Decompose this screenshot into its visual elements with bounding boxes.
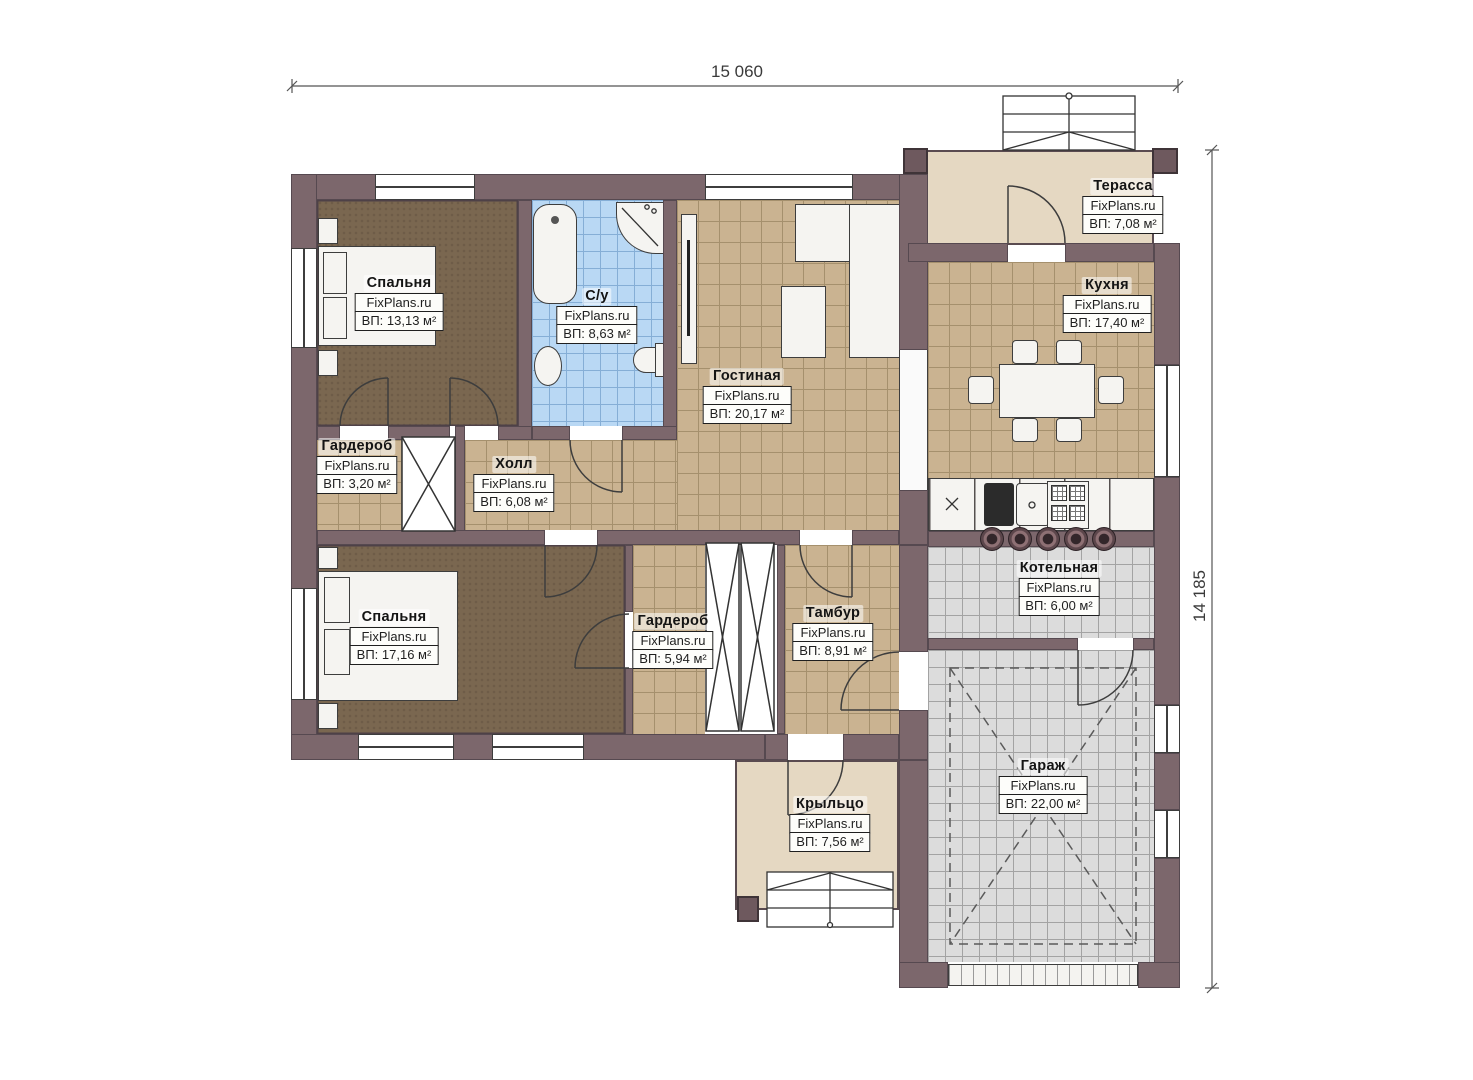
room-label-bedroom-1: Спальня FixPlans.ru ВП: 13,13 м² [355,275,444,331]
wall-vestibule-boiler-lower [899,710,928,760]
equipment-knob [1008,527,1032,551]
sofa-side [849,204,905,358]
room-info: FixPlans.ru ВП: 17,40 м² [1063,296,1152,333]
room-info: FixPlans.ru ВП: 20,17 м² [703,387,792,424]
room-label-wardrobe-2: Гардероб FixPlans.ru ВП: 5,94 м² [632,613,713,669]
room-label-wardrobe-1: Гардероб FixPlans.ru ВП: 3,20 м² [316,438,397,494]
room-info: FixPlans.ru ВП: 22,00 м² [999,777,1088,814]
room-area: ВП: 3,20 м² [316,474,397,494]
bathtub-drain [551,216,559,224]
equipment-knob [980,527,1004,551]
wall-bedroom2-wardrobe2-upper [625,545,633,612]
window-bottom-2 [492,734,584,760]
room-info: FixPlans.ru ВП: 3,20 м² [316,457,397,494]
room-info: FixPlans.ru ВП: 17,16 м² [350,628,439,665]
room-label-terrace: Терасса FixPlans.ru ВП: 7,08 м² [1082,178,1163,234]
room-label-boiler-room: Котельная FixPlans.ru ВП: 6,00 м² [1017,560,1102,616]
wall-garage-bottom-left [899,962,948,988]
room-area: ВП: 22,00 м² [999,794,1088,814]
wall-garage-left [899,760,928,988]
watermark: FixPlans.ru [1063,295,1152,315]
garage-door [948,964,1138,986]
terrace-stairs [1003,93,1135,150]
room-label-garage: Гараж FixPlans.ru ВП: 22,00 м² [999,758,1088,814]
room-name: Крыльцо [793,796,867,813]
pillow [324,577,350,623]
pillow [323,252,347,294]
room-info: FixPlans.ru ВП: 6,00 м² [1018,579,1099,616]
chair [968,376,994,404]
room-area: ВП: 5,94 м² [632,649,713,669]
nightstand [318,350,338,376]
chair [1012,418,1038,442]
room-label-living-room: Гостиная FixPlans.ru ВП: 20,17 м² [703,368,792,424]
wall-terrace-kitchen-right [1065,243,1154,262]
room-label-hall: Холл FixPlans.ru ВП: 6,08 м² [473,456,554,512]
wall-bedroom1-bottom-c [498,426,532,440]
room-area: ВП: 6,00 м² [1018,596,1099,616]
wall-bathroom-living [663,200,677,440]
room-area: ВП: 13,13 м² [355,311,444,331]
pillow [323,297,347,339]
stove-burner [1051,505,1067,521]
room-area: ВП: 17,40 м² [1063,313,1152,333]
tv [687,240,690,336]
nightstand [318,703,338,729]
equipment-knob [1064,527,1088,551]
room-label-bedroom-2: Спальня FixPlans.ru ВП: 17,16 м² [350,609,439,665]
wall-bathroom-bottom-a [532,426,570,440]
wall-mid-b [597,530,800,545]
room-name: Гардероб [635,613,712,630]
watermark: FixPlans.ru [350,627,439,647]
watermark: FixPlans.ru [789,814,870,834]
coffee-table [781,286,826,358]
room-name: Терасса [1090,178,1156,195]
wall-boiler-garage-left [928,638,1078,650]
room-name: Спальня [359,609,430,626]
room-name: Гостиная [710,368,784,385]
room-info: FixPlans.ru ВП: 6,08 м² [473,475,554,512]
equipment-knob [1092,527,1116,551]
wall-bedroom1-bathroom [518,200,532,440]
wall-bottom-stub-right [843,734,899,760]
opening-living-kitchen [899,350,928,490]
chair [1098,376,1124,404]
wall-wardrobe2-vestibule [777,545,785,734]
wall-wardrobe1-hall [455,426,465,545]
room-area: ВП: 6,08 м² [473,492,554,512]
dimension-width-label: 15 060 [711,62,763,82]
dimension-height-label: 14 185 [1190,570,1210,622]
wall-mid-a [317,530,545,545]
wall-bathroom-bottom-b [622,426,677,440]
watermark: FixPlans.ru [473,474,554,494]
watermark: FixPlans.ru [999,776,1088,796]
watermark: FixPlans.ru [1018,578,1099,598]
room-info: FixPlans.ru ВП: 7,08 м² [1082,197,1163,234]
watermark: FixPlans.ru [632,631,713,651]
wall-right-2 [1154,477,1180,705]
room-area: ВП: 8,91 м² [792,641,873,661]
stove-burner [1069,505,1085,521]
wall-bottom-stub-left [765,734,788,760]
room-name: С/у [582,288,611,305]
window-garage-right-2 [1154,810,1180,858]
stove-burner [1069,485,1085,501]
room-area: ВП: 8,63 м² [556,324,637,344]
room-area: ВП: 7,56 м² [789,832,870,852]
wall-living-kitchen-lower [899,490,928,545]
kitchen-sink [1016,483,1050,526]
room-info: FixPlans.ru ВП: 13,13 м² [355,294,444,331]
wall-boiler-garage-right [1133,638,1154,650]
wall-vestibule-boiler-upper [899,545,928,652]
room-info: FixPlans.ru ВП: 5,94 м² [632,632,713,669]
room-label-porch: Крыльцо FixPlans.ru ВП: 7,56 м² [789,796,870,852]
pillow [324,629,350,675]
chair [1056,340,1082,364]
watermark: FixPlans.ru [1082,196,1163,216]
watermark: FixPlans.ru [355,293,444,313]
window-bedroom1-left [291,248,317,348]
window-kitchen-right [1154,365,1180,477]
terrace-column-left [903,148,928,174]
stove-burner [1051,485,1067,501]
watermark: FixPlans.ru [792,623,873,643]
wall-garage-bottom-right [1138,962,1180,988]
floor-plan-canvas: 15 060 14 185 [0,0,1473,1080]
watermark: FixPlans.ru [703,386,792,406]
chair [1056,418,1082,442]
nightstand [318,218,338,244]
chair [1012,340,1038,364]
watermark: FixPlans.ru [556,306,637,326]
kitchen-sink-drainer [984,483,1014,526]
dimension-height-line [1205,145,1219,993]
window-bottom-1 [358,734,454,760]
room-name: Спальня [364,275,435,292]
room-info: FixPlans.ru ВП: 7,56 м² [789,815,870,852]
room-name: Тамбур [803,605,863,622]
room-name: Котельная [1017,560,1102,577]
room-info: FixPlans.ru ВП: 8,91 м² [792,624,873,661]
window-living-top [705,174,853,200]
wall-living-kitchen-upper [899,174,928,350]
wall-right-3 [1154,753,1180,810]
room-label-bathroom: С/у FixPlans.ru ВП: 8,63 м² [556,288,637,344]
room-name: Гардероб [319,438,396,455]
room-name: Кухня [1082,277,1132,294]
dining-table [999,364,1095,418]
porch-column [737,896,759,922]
nightstand [318,547,338,569]
wall-right-1 [1154,243,1180,365]
watermark: FixPlans.ru [316,456,397,476]
room-label-kitchen: Кухня FixPlans.ru ВП: 17,40 м² [1063,277,1152,333]
wall-mid-c [852,530,899,545]
room-info: FixPlans.ru ВП: 8,63 м² [556,307,637,344]
wall-terrace-kitchen-left [908,243,1008,262]
terrace-column-right [1152,148,1178,174]
room-area: ВП: 17,16 м² [350,645,439,665]
wall-bedroom2-wardrobe2-lower [625,668,633,735]
room-name: Гараж [1018,758,1069,775]
window-bedroom2-left [291,588,317,700]
window-garage-right-1 [1154,705,1180,753]
sink [534,346,562,386]
room-area: ВП: 7,08 м² [1082,214,1163,234]
room-area: ВП: 20,17 м² [703,404,792,424]
room-label-vestibule: Тамбур FixPlans.ru ВП: 8,91 м² [792,605,873,661]
window-bedroom1-top [375,174,475,200]
room-name: Холл [492,456,536,473]
equipment-knob [1036,527,1060,551]
